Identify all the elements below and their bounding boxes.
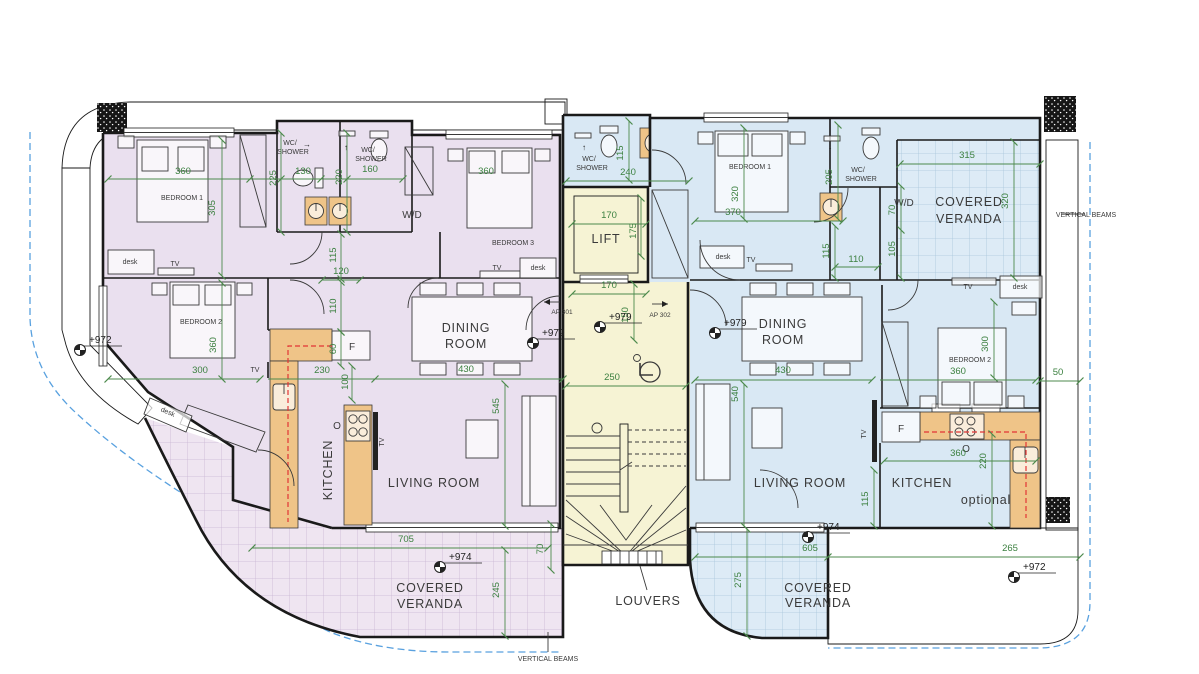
dim-105-right: 105	[887, 241, 898, 257]
dim-115-right: 115	[821, 243, 832, 258]
label-wc-core-a: WC/	[582, 156, 596, 163]
label-veranda-tr-a: COVERED	[935, 195, 1002, 209]
sink-left-1	[305, 197, 327, 225]
dim-hall-110-left: 110	[328, 298, 339, 313]
chair-right-2	[1012, 302, 1036, 315]
label-tv-left-1: TV	[171, 261, 180, 268]
dim-kitchen-360-right: 360	[950, 448, 966, 459]
svg-text:+979: +979	[542, 328, 565, 339]
dim-lift-170b: 170	[601, 280, 617, 291]
dim-veranda-245-left: 245	[491, 582, 502, 598]
label-wc2-left-a: WC/	[361, 147, 375, 154]
label-wc2-left-b: SHOWER	[355, 156, 387, 163]
column-top-right	[1044, 96, 1076, 132]
svg-text:LOUVERS: LOUVERS	[615, 594, 680, 608]
dim-bed1r-370: 370	[725, 207, 741, 218]
label-veranda-br-b: VERANDA	[785, 596, 851, 610]
dim-100-left: 100	[340, 374, 351, 390]
label-bedroom2-left: BEDROOM 2	[180, 319, 222, 326]
dim-115-right-living: 115	[860, 491, 871, 506]
label-desk-left-1: desk	[123, 259, 138, 266]
svg-text:VERTICAL BEAMS: VERTICAL BEAMS	[1056, 212, 1117, 219]
dim-dining-430-left: 430	[458, 364, 474, 375]
svg-text:+974: +974	[449, 552, 472, 563]
dim-living-540-right: 540	[730, 386, 741, 402]
label-bedroom3-left: BEDROOM 3	[492, 240, 534, 247]
dim-fridge-60-left: 60	[328, 344, 339, 355]
dim-veranda-275-right: 275	[733, 572, 744, 588]
label-tv-left-2: TV	[493, 265, 502, 272]
dim-lift-175: 175	[628, 223, 639, 239]
label-tv-right-3: TV	[861, 429, 868, 438]
label-dining-right-a: DINING	[759, 317, 808, 331]
dim-kitchen-230-left: 230	[314, 365, 330, 376]
dim-lift-170a: 170	[601, 210, 617, 221]
tv-stand-left-1	[158, 268, 194, 275]
coffee-table-right	[752, 408, 782, 448]
label-desk-left-2: desk	[531, 265, 546, 272]
dim-bed2l-depth: 360	[208, 337, 219, 353]
label-bedroom2-right: BEDROOM 2	[949, 357, 991, 364]
label-optional: optional	[961, 493, 1011, 507]
svg-text:VERTICAL BEAMS: VERTICAL BEAMS	[518, 656, 579, 663]
dim-70-left: 70	[535, 544, 546, 555]
label-wd-left: W/D	[402, 210, 421, 221]
tv-stand-left-2	[480, 271, 520, 278]
dim-living-545-left: 545	[491, 398, 502, 414]
dim-wc-core-115: 115	[615, 145, 626, 160]
dim-bed1r-320: 320	[730, 186, 741, 202]
level-972-right: +972	[1009, 562, 1057, 583]
louvers-note: LOUVERS	[615, 566, 680, 608]
label-wc2-right-b: SHOWER	[845, 176, 877, 183]
sofa-right	[696, 384, 730, 480]
label-wc1-left-a: WC/	[283, 140, 297, 147]
label-oven-left: O	[333, 421, 341, 432]
shower-arrow-left-2: ↑	[344, 143, 348, 152]
svg-text:+979: +979	[609, 312, 632, 323]
label-fridge-left: F	[349, 342, 355, 353]
label-lift: LIFT	[592, 232, 621, 246]
label-bedroom1-right: BEDROOM 1	[729, 164, 771, 171]
dim-bed2l-width: 300	[192, 365, 208, 376]
shower-arrow-right: ↑	[828, 145, 832, 154]
column-top-left	[97, 103, 127, 132]
dim-hall-115-left: 115	[328, 247, 339, 262]
dim-bed3l-width: 360	[478, 166, 494, 177]
dim-265-right: 265	[1002, 543, 1018, 554]
dim-50-right: 50	[1053, 367, 1064, 378]
toilet-right	[862, 128, 880, 159]
label-living-right: LIVING ROOM	[754, 476, 846, 490]
label-dining-left-b: ROOM	[445, 337, 487, 351]
dim-wd-70-right: 70	[887, 205, 898, 216]
dim-veranda-705-left: 705	[398, 534, 414, 545]
dim-bed1l-depth: 305	[207, 200, 218, 216]
dim-wcr-205: 205	[824, 169, 835, 185]
label-wc-core-b: SHOWER	[576, 165, 608, 172]
veranda-top-right-tiles	[897, 140, 1040, 280]
label-dining-right-b: ROOM	[762, 333, 804, 347]
label-veranda-left-a: COVERED	[396, 581, 463, 595]
label-veranda-left-b: VERANDA	[397, 597, 463, 611]
tv-left-living	[373, 412, 378, 470]
svg-text:AP 301: AP 301	[551, 309, 573, 316]
sink-right	[820, 193, 842, 221]
dim-bed2r-300: 300	[980, 336, 991, 352]
dim-wc1l-depth: 225	[268, 170, 279, 186]
label-kitchen-left: KITCHEN	[321, 440, 335, 500]
svg-text:+979: +979	[724, 318, 747, 329]
label-veranda-tr-b: VERANDA	[936, 212, 1002, 226]
dim-bed1l-width: 360	[175, 166, 191, 177]
label-dining-left-a: DINING	[442, 321, 491, 335]
dim-dining-430-right: 430	[775, 365, 791, 376]
dim-wc2l-depth: 220	[334, 169, 345, 185]
label-tv-left-3: TV	[251, 367, 260, 374]
sink-left-2	[329, 197, 351, 225]
label-veranda-br-a: COVERED	[784, 581, 851, 595]
dim-110-right: 110	[848, 254, 863, 265]
dim-wc-core-240: 240	[620, 167, 636, 178]
coffee-table-left	[466, 420, 498, 458]
label-living-left: LIVING ROOM	[388, 476, 480, 490]
tv-stand-right-1	[756, 264, 792, 271]
dim-kitchen-220-right: 220	[978, 453, 989, 469]
label-wc2-right-a: WC/	[851, 167, 865, 174]
svg-text:AP 302: AP 302	[649, 312, 671, 319]
dim-stair-250: 250	[604, 372, 620, 383]
label-kitchen-right: KITCHEN	[892, 476, 952, 490]
label-wc1-left-b: SHOWER	[277, 149, 309, 156]
tv-right-living	[872, 400, 877, 462]
shower-arrow-core: ↑	[582, 143, 586, 152]
dim-veranda-605-right: 605	[802, 543, 818, 554]
dim-wc2l-width: 160	[362, 164, 378, 175]
label-tv-left-4: TV	[379, 437, 386, 446]
svg-text:+974: +974	[817, 522, 840, 533]
label-desk-right-1: desk	[716, 254, 731, 261]
floor-plan-drawing: BEDROOM 1 BEDROOM 2 BEDROOM 3 WC/ SHOWER…	[0, 0, 1199, 669]
label-bedroom1-left: BEDROOM 1	[161, 195, 203, 202]
dim-veranda-tr-320: 320	[1000, 193, 1011, 209]
svg-text:+972: +972	[89, 335, 112, 346]
dim-bed2r-360: 360	[950, 366, 966, 377]
svg-text:+972: +972	[1023, 562, 1046, 573]
tv-stand-right-2	[952, 278, 996, 285]
column-right	[1046, 497, 1070, 523]
dim-veranda-tr-315: 315	[959, 150, 975, 161]
label-tv-right-2: TV	[964, 284, 973, 291]
stairwell	[563, 282, 690, 565]
label-fridge-right: F	[898, 424, 904, 435]
label-tv-right-1: TV	[747, 257, 756, 264]
shower-arrow-left-1: →	[303, 140, 311, 149]
apartment-right	[650, 113, 1042, 638]
label-desk-right-2: desk	[1013, 284, 1028, 291]
vertical-beams-right-note: VERTICAL BEAMS	[1056, 212, 1117, 219]
dim-wc1l-width: 130	[295, 166, 311, 177]
sofa-left	[522, 396, 556, 506]
floor-plan-page: BEDROOM 1 BEDROOM 2 BEDROOM 3 WC/ SHOWER…	[0, 0, 1199, 669]
shower-head-core	[575, 133, 591, 138]
dim-door-120-left: 120	[333, 266, 349, 277]
